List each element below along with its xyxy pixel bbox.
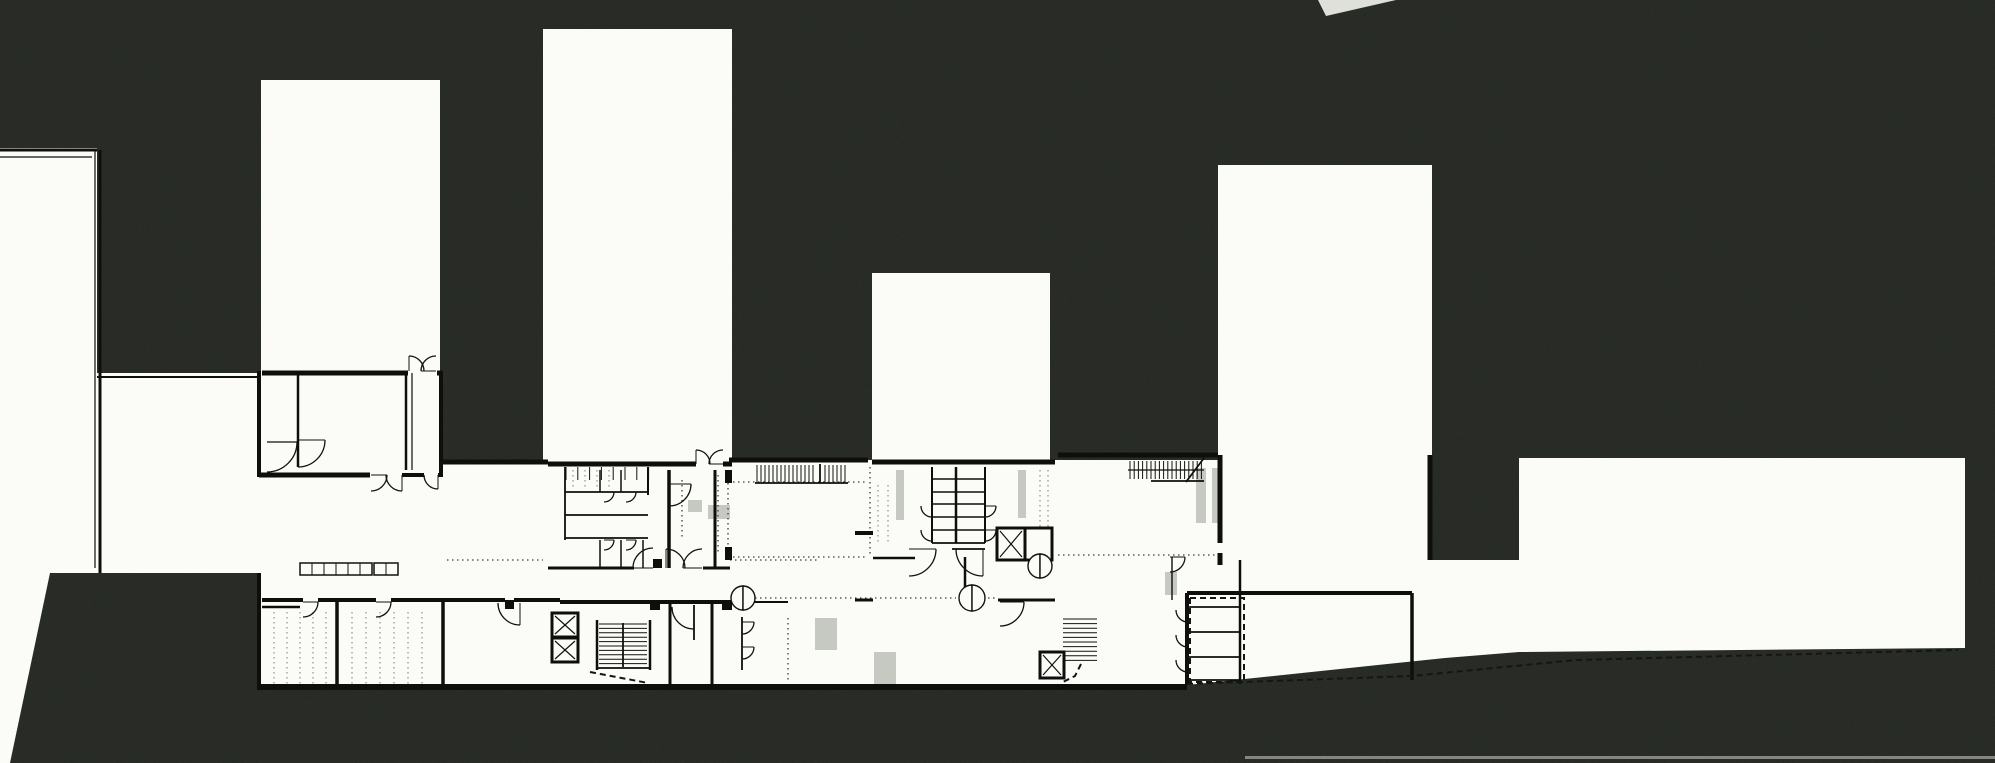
floor-plan-page (0, 0, 1995, 763)
fixture-shading (815, 618, 837, 650)
column (725, 470, 732, 483)
column (505, 600, 514, 609)
right-low-building (1519, 458, 1965, 652)
fixture-shading (1018, 470, 1026, 518)
fixture-shading (1165, 572, 1177, 595)
column (650, 600, 660, 610)
scan-line (1245, 756, 1995, 759)
floor-plan-canvas (0, 0, 1995, 763)
fixture-shading (708, 505, 730, 519)
tower-1-with-wing (258, 80, 443, 477)
column (722, 600, 732, 610)
fixture-shading (896, 470, 904, 520)
tower-3 (872, 273, 1050, 462)
column (725, 547, 732, 560)
fixture-shading (874, 652, 896, 684)
tower-2 (543, 29, 732, 462)
column (653, 559, 662, 568)
fixture-shading (688, 500, 702, 512)
